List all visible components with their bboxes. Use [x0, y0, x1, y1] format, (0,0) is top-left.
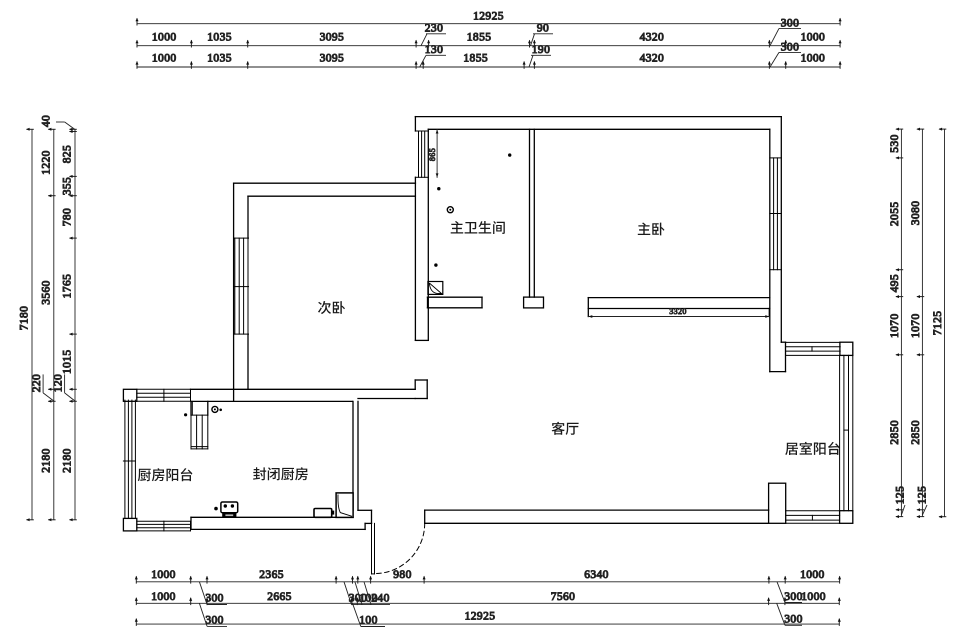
svg-text:300: 300 — [205, 614, 223, 626]
svg-text:190: 190 — [532, 44, 550, 56]
svg-text:3095: 3095 — [320, 31, 345, 43]
svg-text:1000: 1000 — [151, 591, 176, 603]
svg-text:1070: 1070 — [889, 313, 901, 338]
svg-text:2180: 2180 — [40, 448, 52, 473]
svg-text:300: 300 — [781, 41, 799, 53]
svg-text:2055: 2055 — [889, 201, 901, 226]
svg-text:300: 300 — [205, 593, 223, 605]
svg-text:3320: 3320 — [669, 307, 687, 316]
svg-text:7560: 7560 — [551, 591, 576, 603]
svg-text:90: 90 — [537, 23, 549, 35]
svg-text:865: 865 — [428, 148, 437, 161]
svg-text:120: 120 — [52, 374, 64, 392]
svg-text:100: 100 — [359, 614, 377, 626]
svg-text:3080: 3080 — [910, 201, 922, 226]
svg-text:2665: 2665 — [267, 591, 292, 603]
svg-text:300: 300 — [784, 613, 802, 625]
svg-text:300: 300 — [784, 591, 802, 603]
svg-text:980: 980 — [393, 569, 411, 581]
svg-text:7125: 7125 — [932, 311, 944, 336]
svg-text:2850: 2850 — [889, 420, 901, 445]
svg-text:125: 125 — [917, 486, 929, 504]
svg-text:1070: 1070 — [910, 313, 922, 338]
svg-text:1000: 1000 — [152, 31, 177, 43]
svg-text:7180: 7180 — [19, 306, 31, 331]
svg-text:1765: 1765 — [62, 274, 74, 299]
svg-text:2180: 2180 — [62, 448, 74, 473]
svg-text:4320: 4320 — [640, 53, 665, 65]
svg-text:1000: 1000 — [800, 569, 825, 581]
svg-text:1855: 1855 — [463, 53, 488, 65]
svg-text:6340: 6340 — [584, 569, 609, 581]
svg-text:3095: 3095 — [320, 53, 345, 65]
svg-text:1015: 1015 — [62, 349, 74, 374]
svg-text:825: 825 — [62, 145, 74, 163]
svg-text:240: 240 — [371, 593, 389, 605]
svg-text:780: 780 — [62, 208, 74, 226]
svg-text:40: 40 — [41, 115, 53, 127]
svg-text:2850: 2850 — [910, 420, 922, 445]
svg-text:495: 495 — [889, 274, 901, 292]
svg-text:530: 530 — [889, 134, 901, 152]
svg-text:125: 125 — [895, 486, 907, 504]
svg-text:1000: 1000 — [152, 53, 177, 65]
svg-text:220: 220 — [31, 374, 43, 392]
svg-text:1000: 1000 — [801, 591, 826, 603]
svg-text:355: 355 — [62, 177, 74, 195]
svg-text:1000: 1000 — [801, 31, 826, 43]
svg-text:12925: 12925 — [473, 11, 504, 23]
svg-text:2365: 2365 — [259, 569, 284, 581]
svg-text:1855: 1855 — [467, 31, 492, 43]
svg-text:1000: 1000 — [151, 569, 176, 581]
svg-text:300: 300 — [781, 18, 799, 30]
svg-text:1220: 1220 — [40, 150, 52, 175]
svg-text:1035: 1035 — [207, 31, 232, 43]
svg-text:3560: 3560 — [40, 280, 52, 305]
svg-text:4320: 4320 — [640, 31, 665, 43]
svg-text:12925: 12925 — [465, 610, 496, 622]
svg-text:230: 230 — [425, 23, 443, 35]
svg-text:1000: 1000 — [801, 53, 826, 65]
svg-text:130: 130 — [425, 44, 443, 56]
svg-text:1035: 1035 — [207, 53, 232, 65]
